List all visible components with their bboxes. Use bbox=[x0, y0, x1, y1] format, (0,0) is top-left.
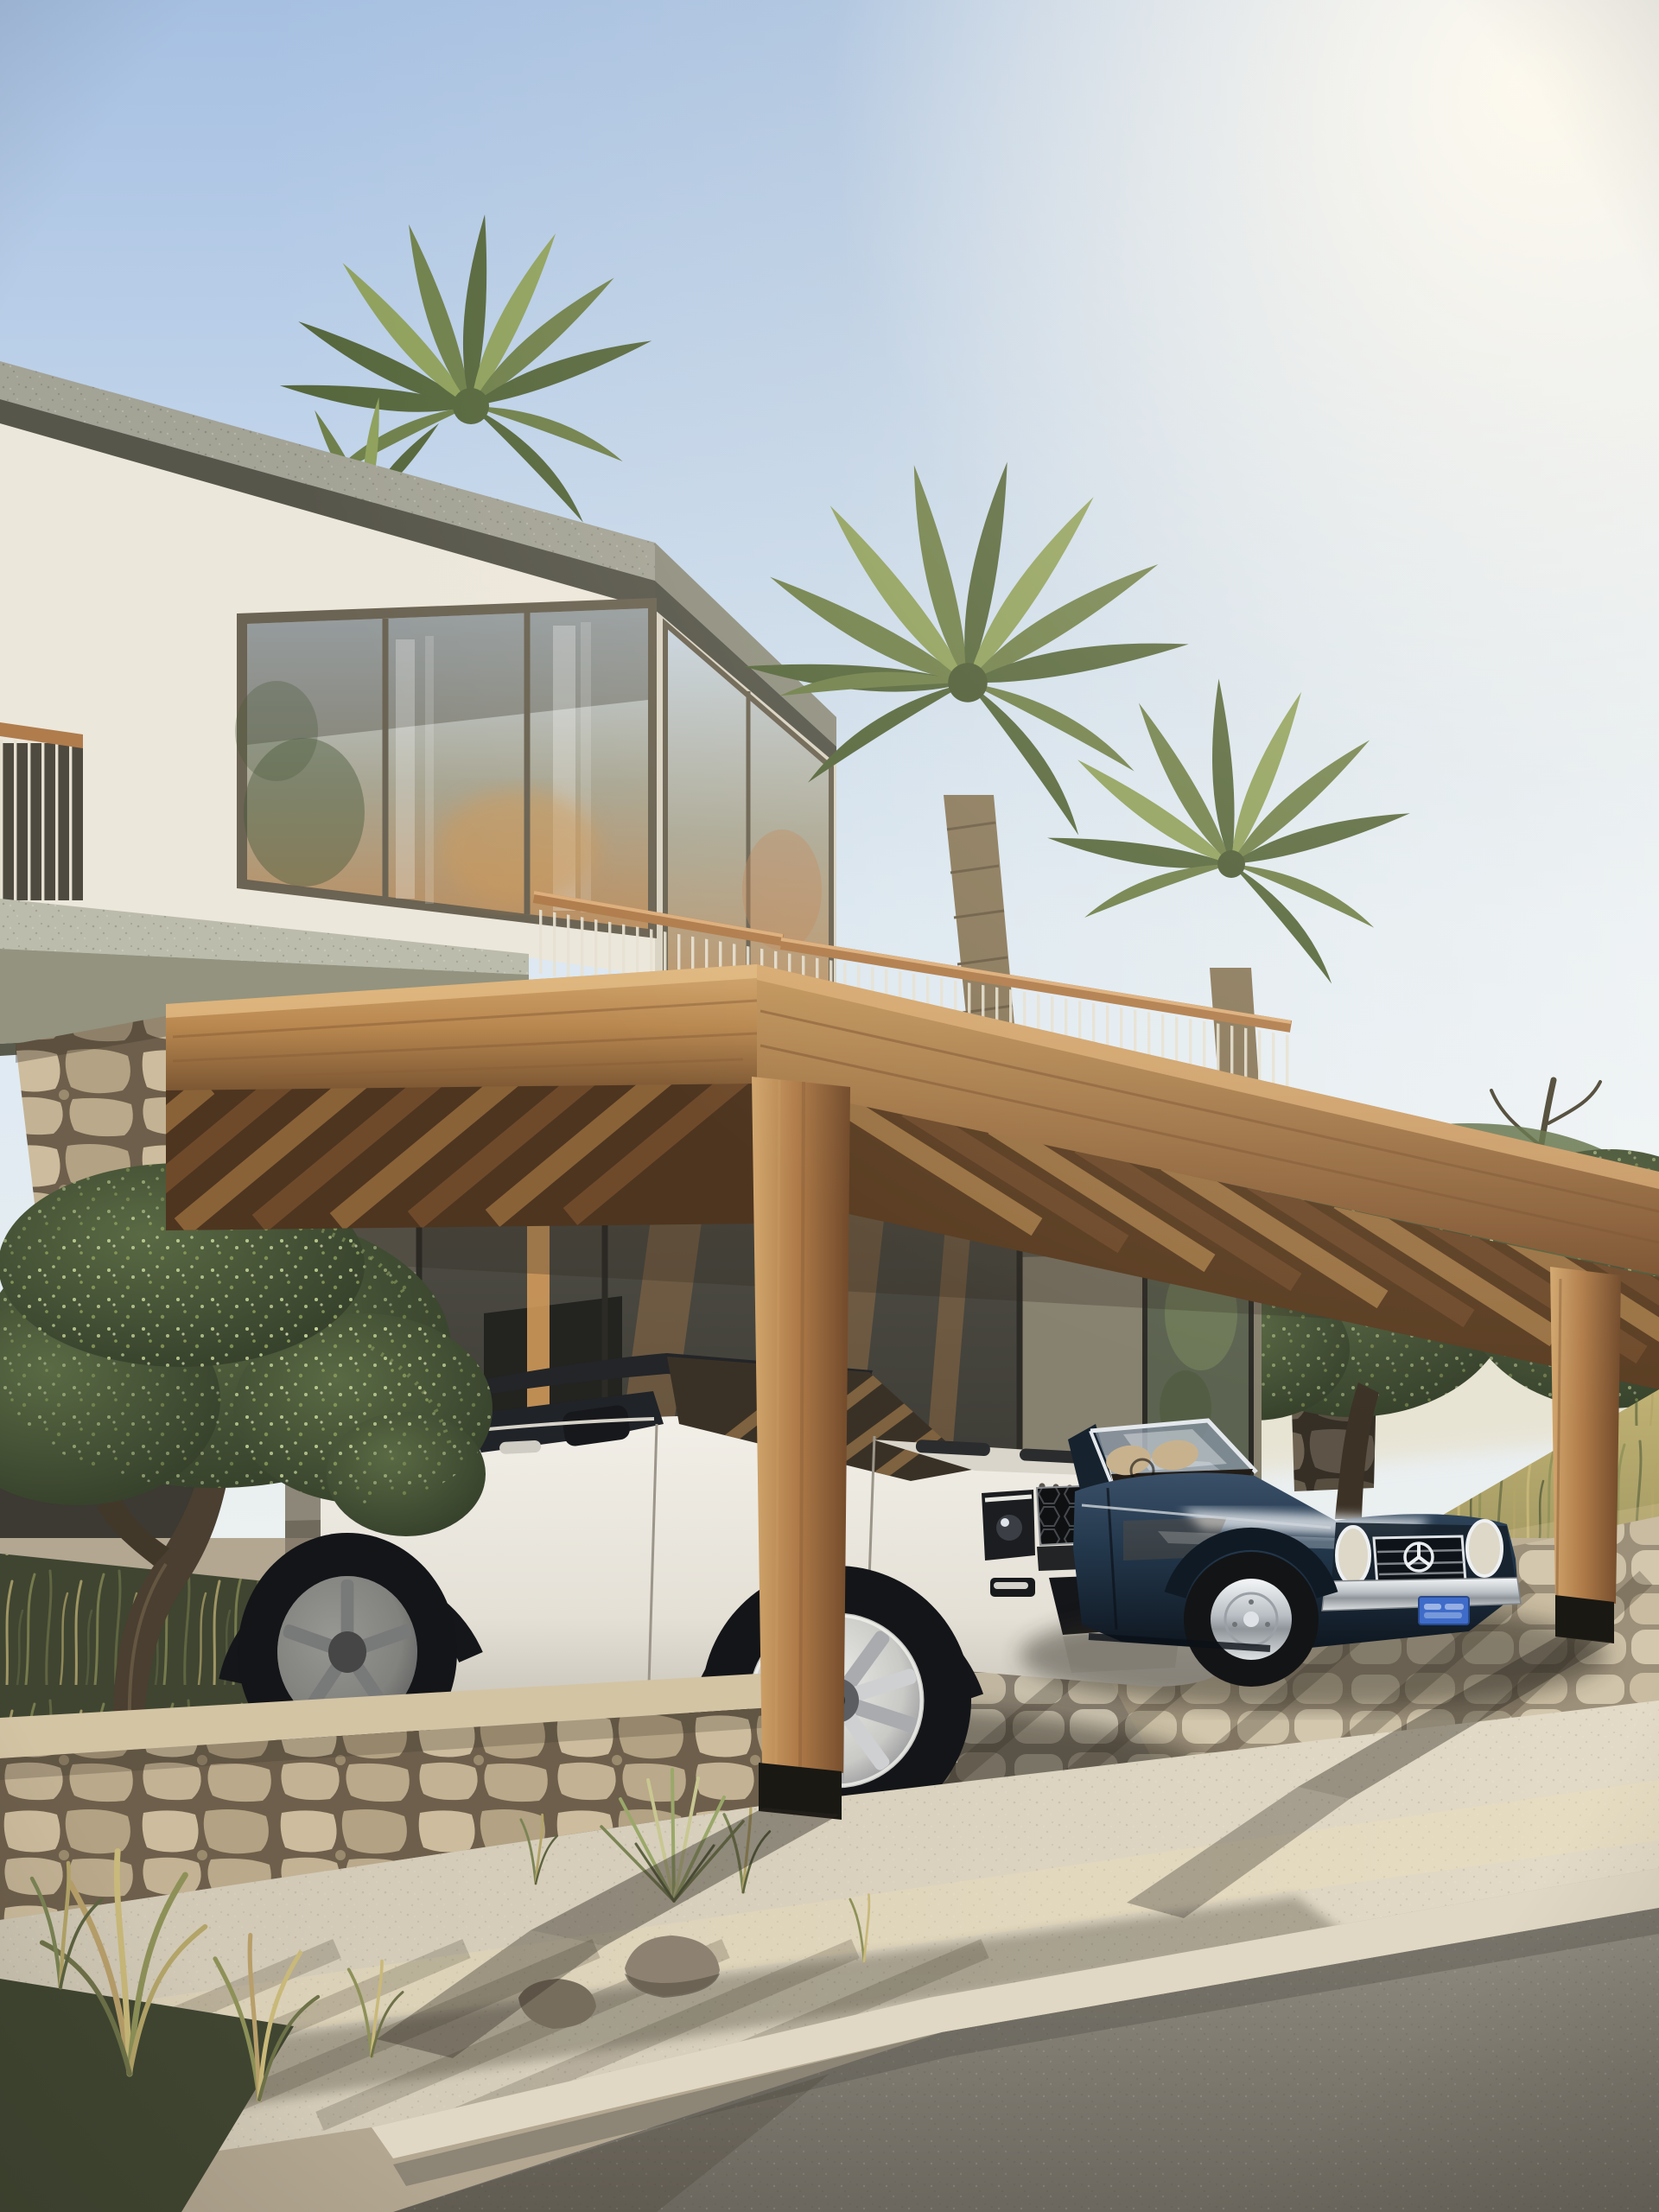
vignette bbox=[0, 0, 1659, 2212]
villa-scene: Sunlit modern villa with timber pergola … bbox=[0, 0, 1659, 2212]
atmosphere: low golden sun from the upper right bbox=[0, 0, 1659, 2212]
rendered-photo: Sunlit modern villa with timber pergola … bbox=[0, 0, 1659, 2212]
